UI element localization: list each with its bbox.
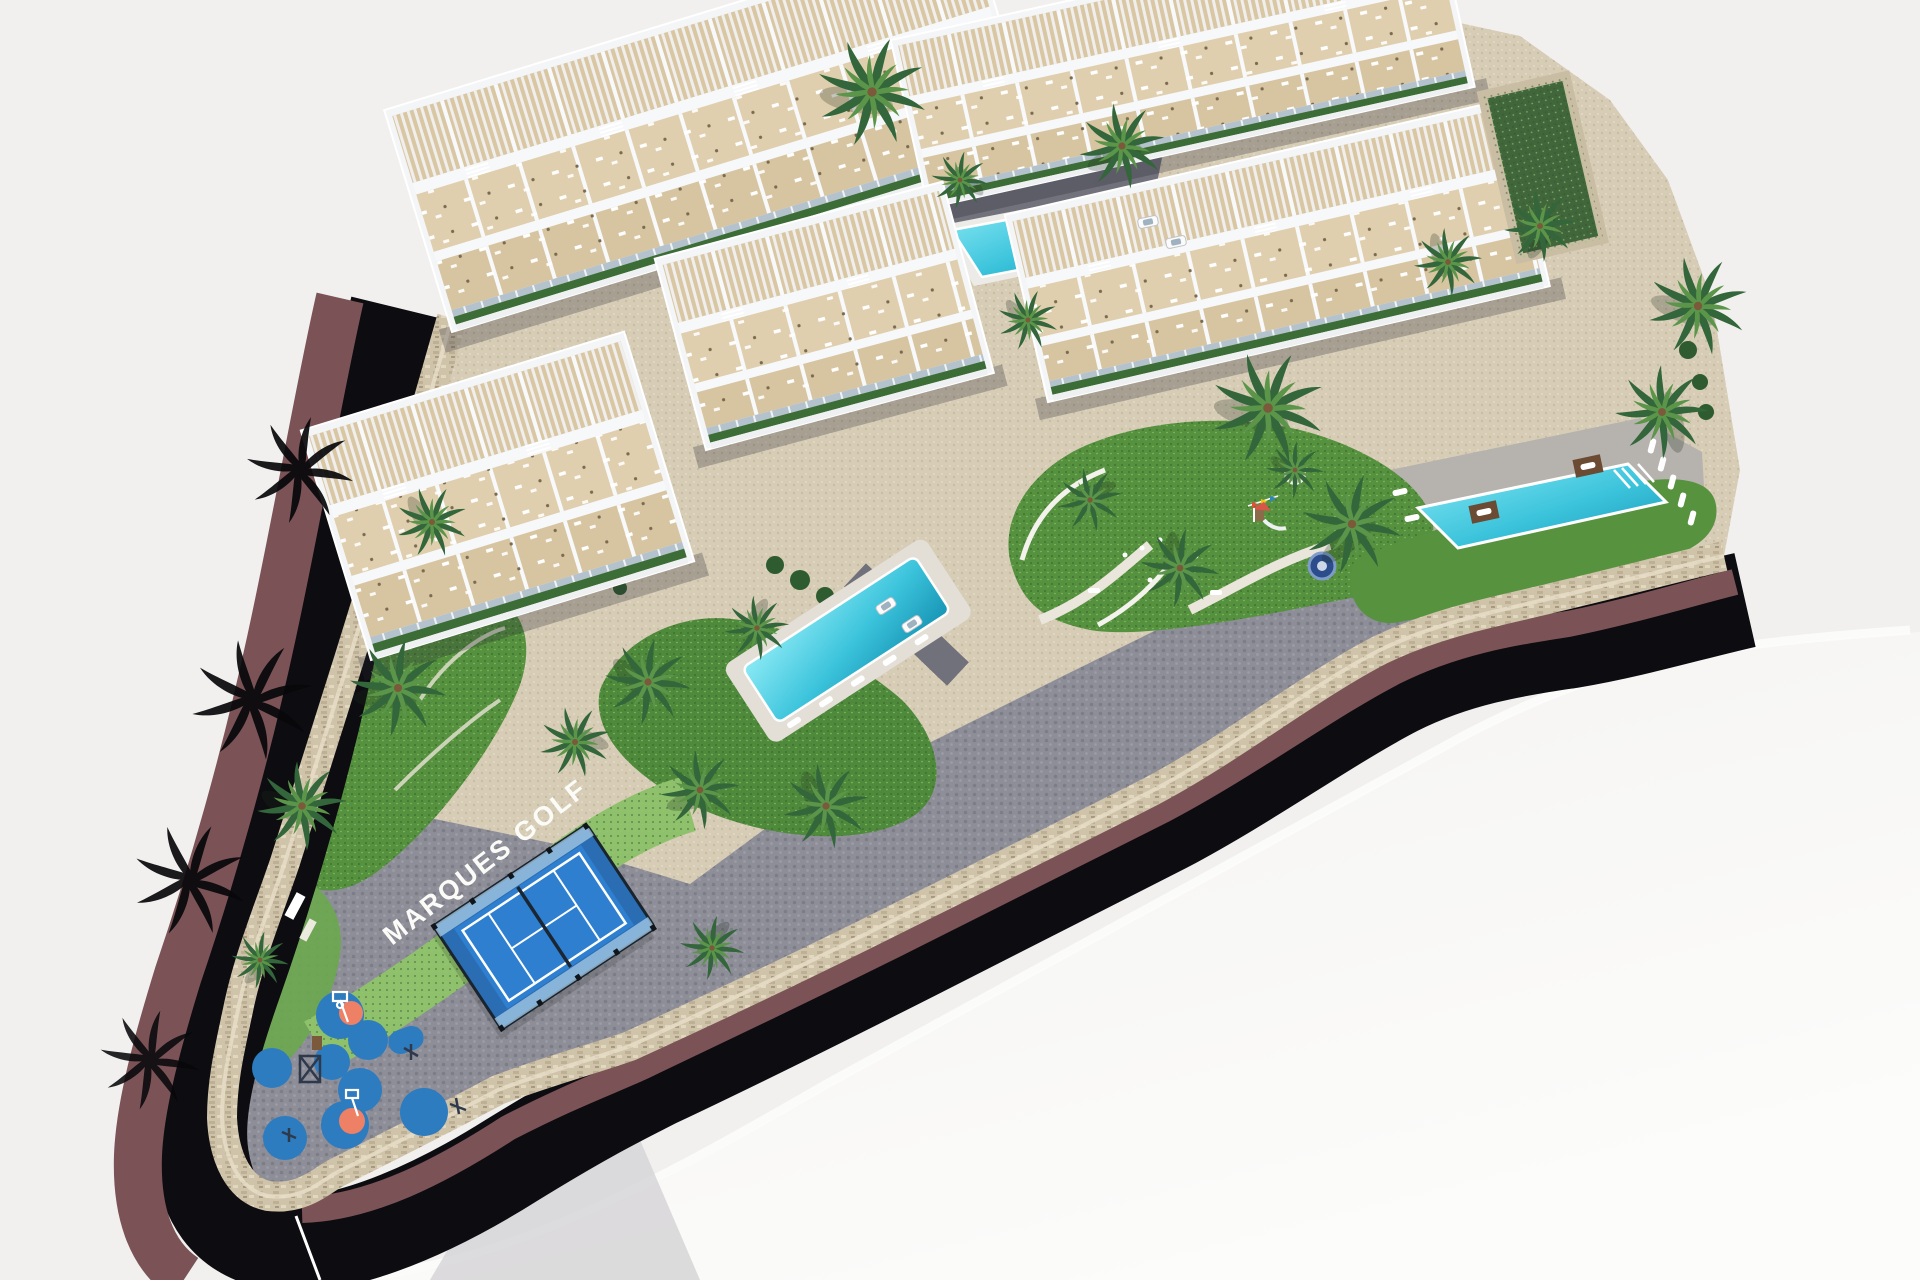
masterplan-render: MARQUES GOLF: [0, 0, 1920, 1280]
aerial-render-stage: MARQUES GOLF: [0, 0, 1920, 1280]
